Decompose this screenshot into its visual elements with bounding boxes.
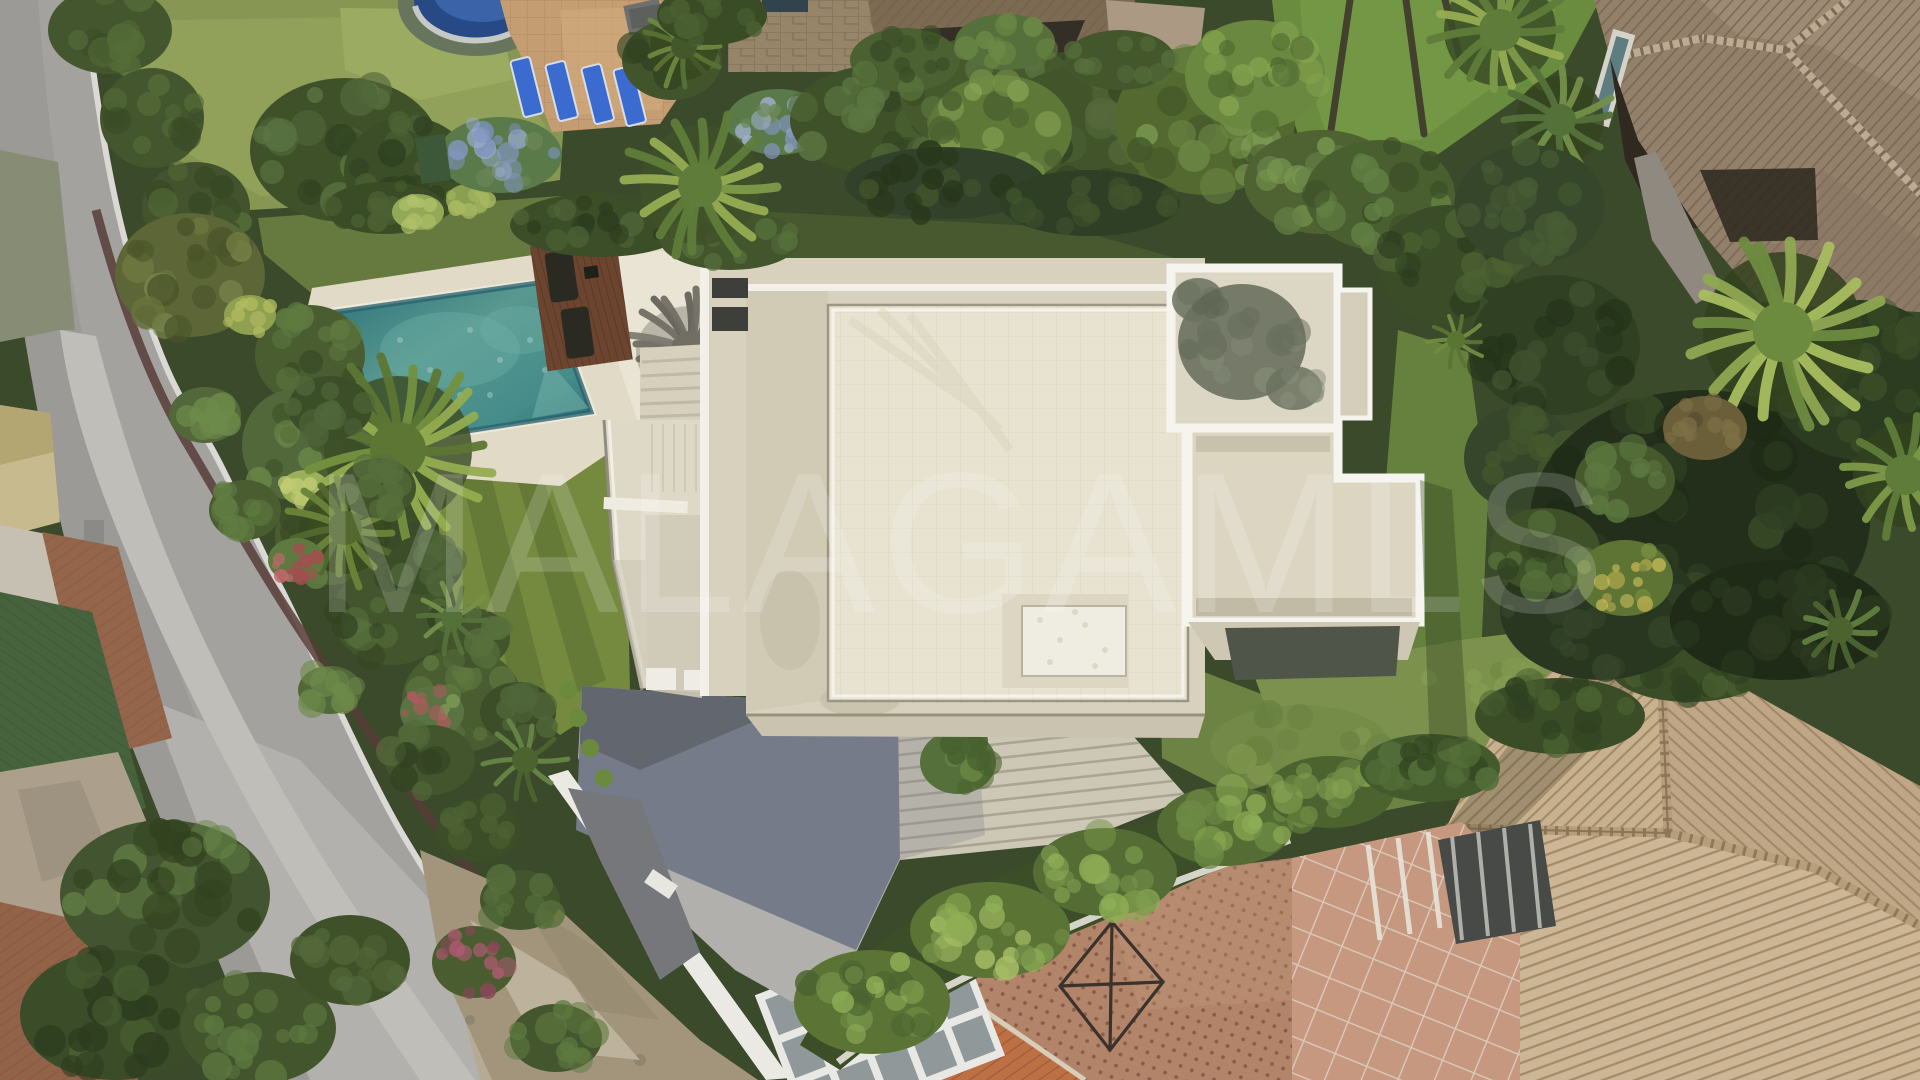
svg-text:MALAGAMLS: MALAGAMLS	[313, 432, 1612, 655]
